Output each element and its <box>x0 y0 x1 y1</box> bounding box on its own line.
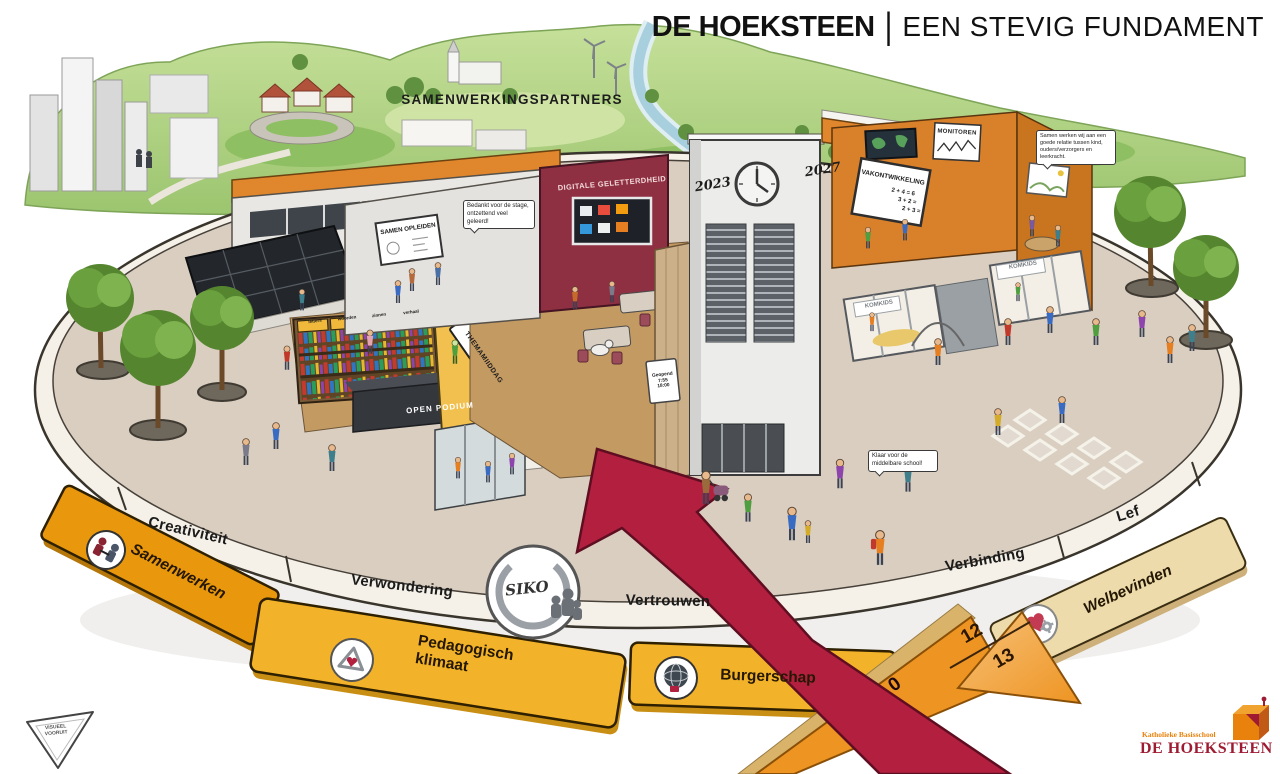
core-value-vertrouwen: Vertrouwen <box>626 592 711 611</box>
map-screen <box>865 129 916 160</box>
digital-screen <box>573 198 651 244</box>
school-type-label: Katholieke Basisschool <box>1142 730 1216 739</box>
hoeksteen-cornerstone-icon <box>1233 697 1269 740</box>
visueel-vooruit-logo <box>27 712 93 768</box>
globe-icon <box>655 657 697 699</box>
tower-louver-right <box>754 224 794 342</box>
title-separator: | <box>885 6 893 49</box>
visueel-vooruit-label: VISUEEL VOORUIT <box>44 724 68 737</box>
page-title: DE HOEKSTEEN | EEN STEVIG FUNDAMENT <box>652 10 1264 44</box>
running-track <box>250 112 354 144</box>
tower-clock <box>736 163 778 205</box>
tower-louver-left <box>706 224 746 342</box>
meeting-table <box>1025 237 1059 251</box>
title-subtitle: EEN STEVIG FUNDAMENT <box>902 11 1264 43</box>
bubble-parent-relation: Samen werken wij aan een goede relatie t… <box>1036 130 1116 165</box>
school-name-label: DE HOEKSTEEN <box>1140 740 1273 758</box>
bubble-stage-thanks: Bedankt voor de stage, ontzettend veel g… <box>463 200 535 229</box>
bubble-secondary-school: Klaar voor de middelbare school! <box>868 450 938 472</box>
tower-entrance <box>702 424 784 472</box>
title-brand: DE HOEKSTEEN <box>652 11 875 44</box>
scene <box>0 0 1280 774</box>
partners-label: SAMENWERKINGSPARTNERS <box>401 92 622 108</box>
door-sign: Geopend 7:55 18:00 <box>652 372 674 391</box>
pillar-burgerschap: Burgerschap <box>720 666 816 687</box>
poster-root: DE HOEKSTEEN | EEN STEVIG FUNDAMENT SAME… <box>0 0 1280 774</box>
